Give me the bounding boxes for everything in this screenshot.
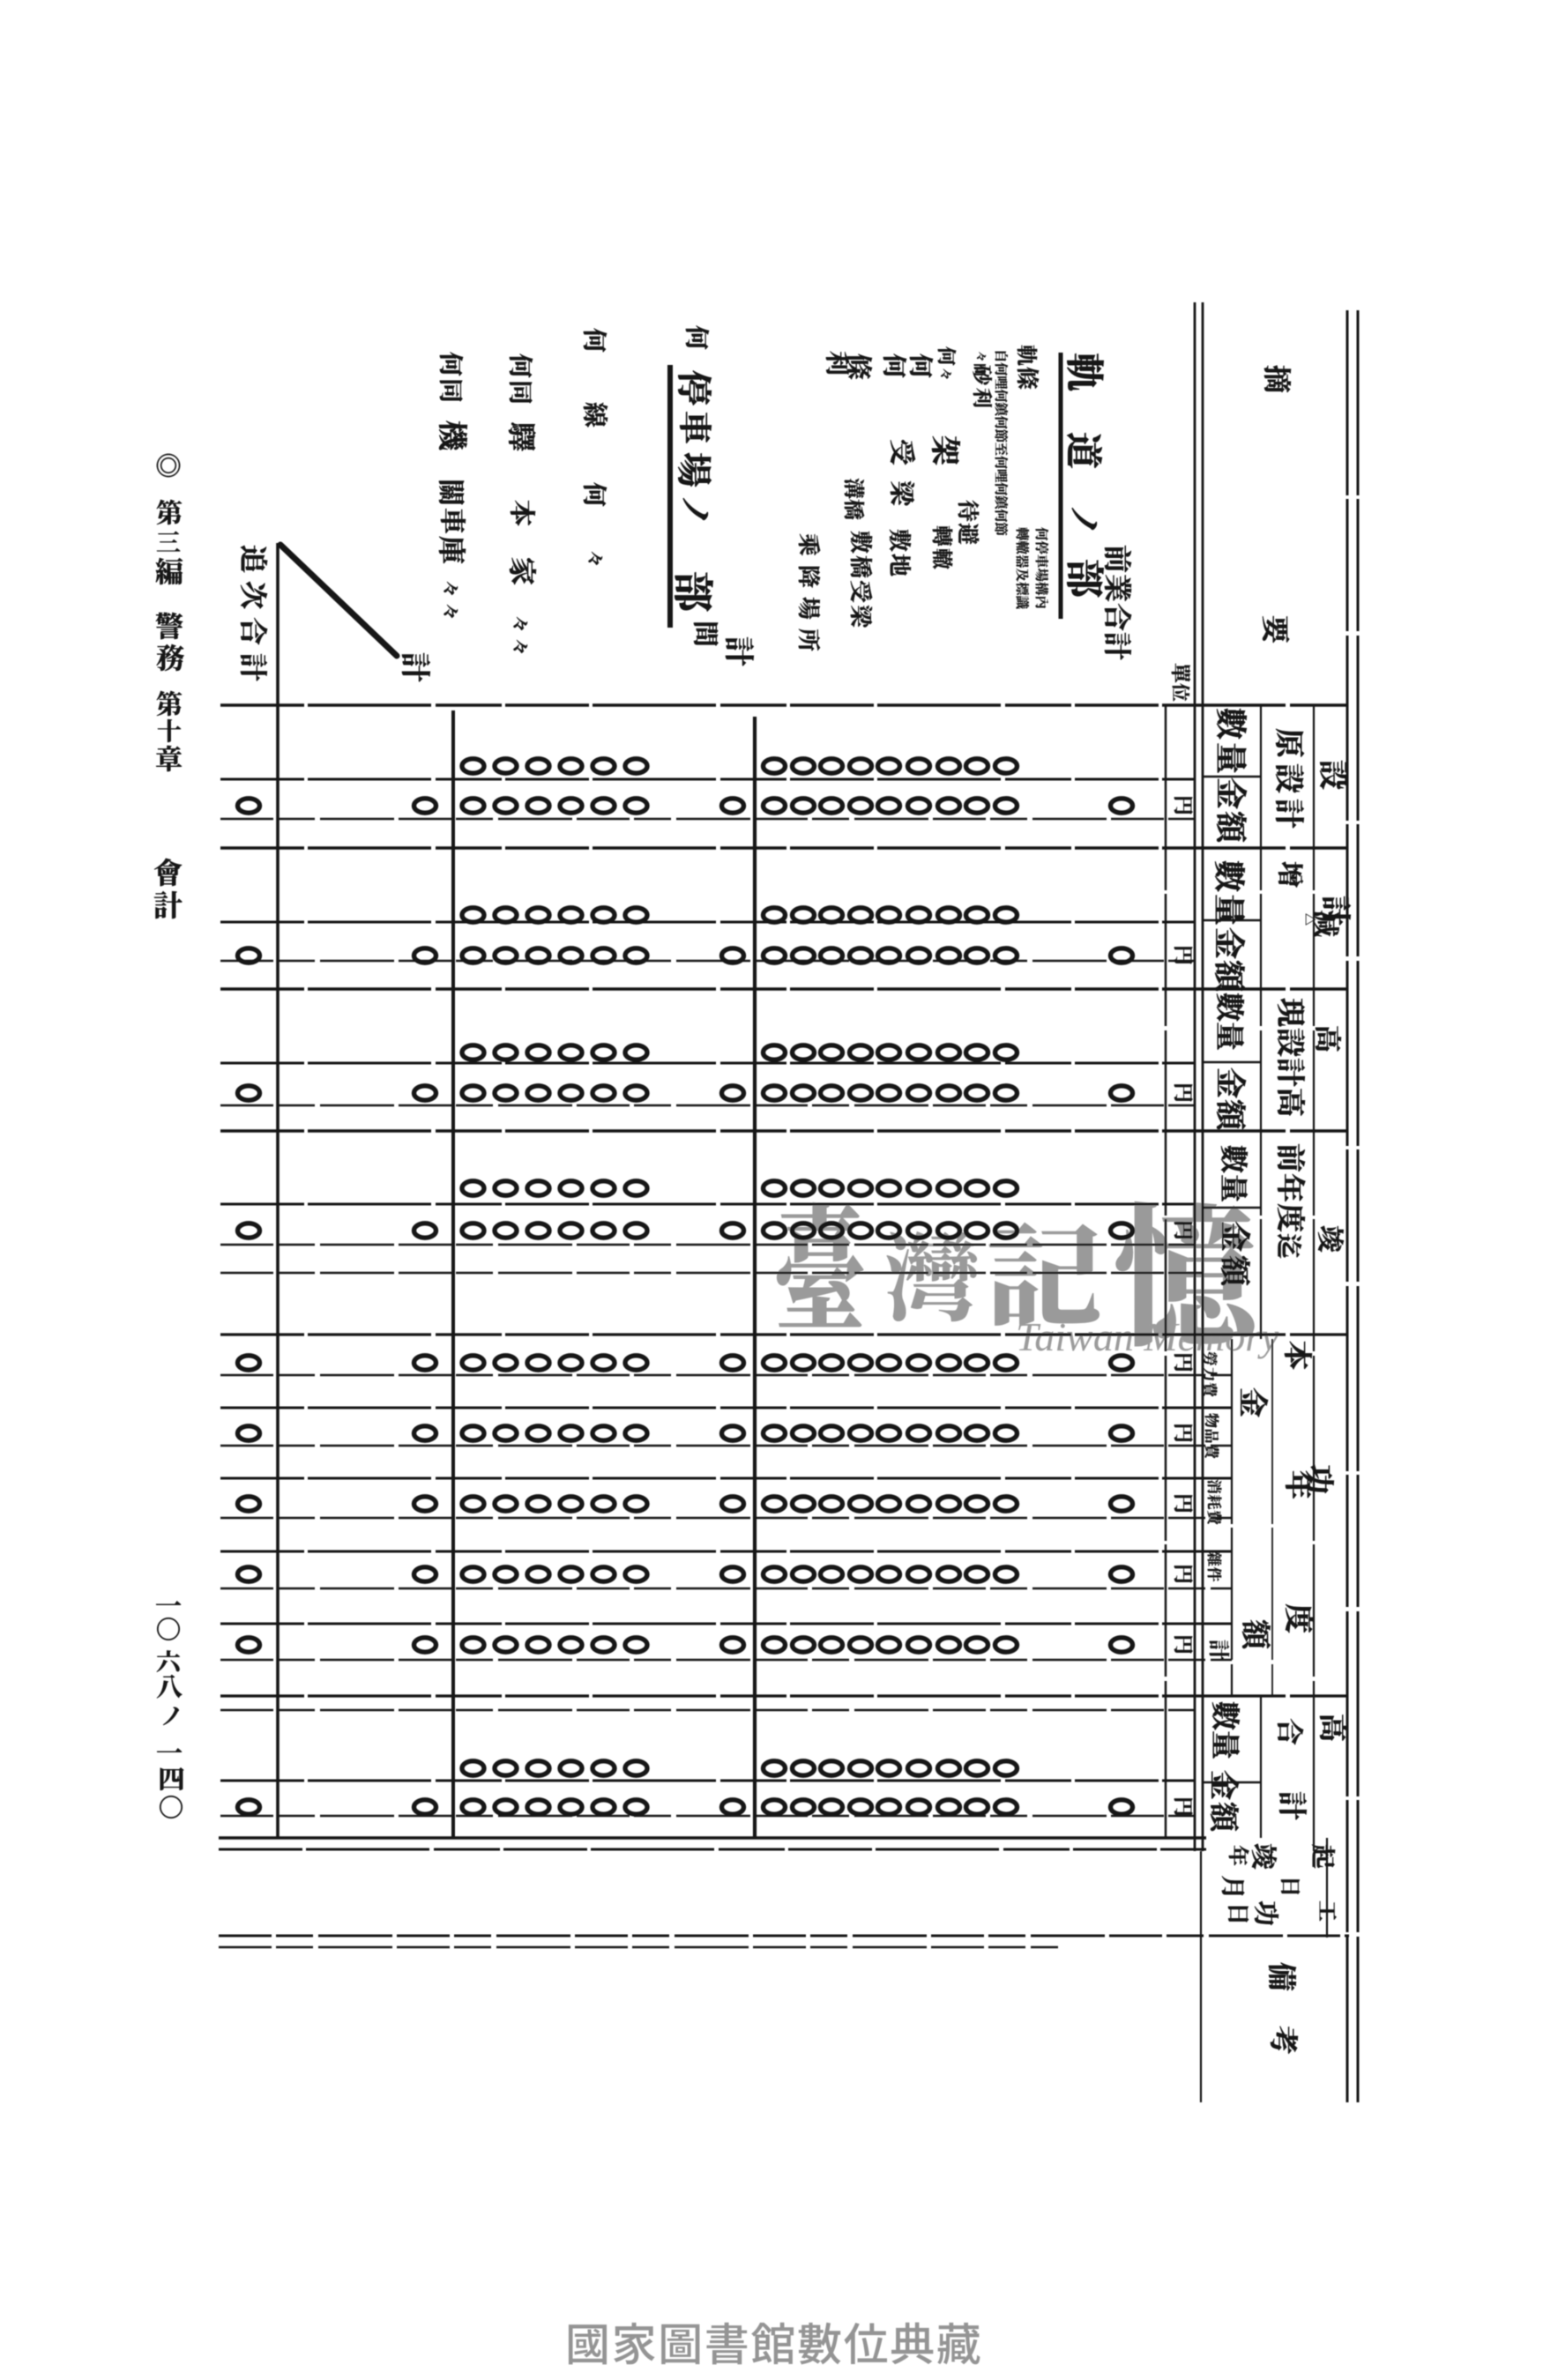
svg-text:Taiwan Memory: Taiwan Memory (1016, 1314, 1279, 1359)
